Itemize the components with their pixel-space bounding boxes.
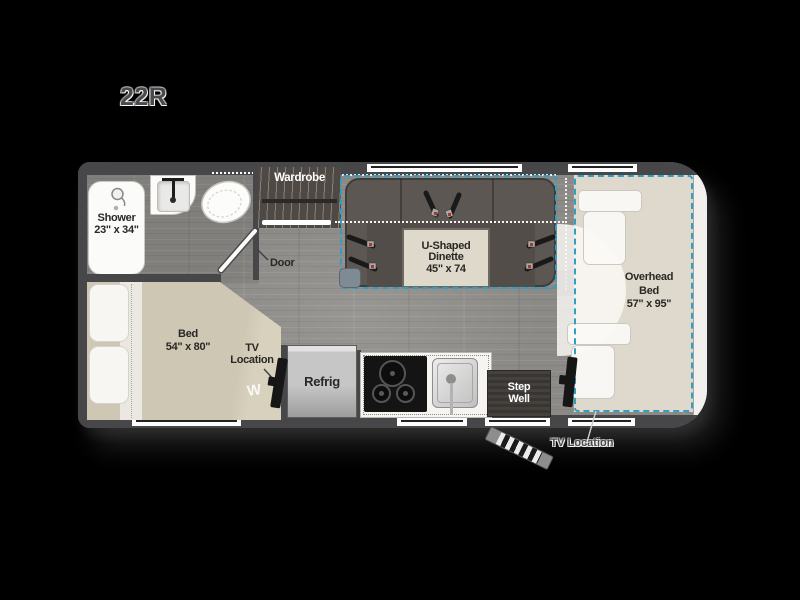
bed-label-block: Bed 54" x 80" bbox=[156, 328, 220, 354]
cab-front-shell bbox=[693, 162, 707, 428]
tv-cab-label: TV Location bbox=[532, 437, 632, 449]
door-label: Door bbox=[270, 258, 310, 270]
refrig-label: Refrig bbox=[304, 376, 340, 388]
shower-label: Shower bbox=[89, 213, 144, 225]
tv-bedroom-label: TV Location bbox=[228, 343, 276, 366]
bed-dims: 54" x 80" bbox=[156, 341, 220, 354]
floorplan-body: Shower 23" x 34" Door Wardrobe U-Shaped … bbox=[78, 162, 707, 428]
floorplan-image: 22R Shower 23" x 34" bbox=[0, 0, 800, 600]
model-title: 22R bbox=[120, 83, 167, 112]
cab-area: Overhead Bed 57" x 95" bbox=[557, 175, 695, 415]
window-bottom-cabdoor bbox=[568, 418, 635, 426]
burner bbox=[372, 384, 391, 403]
burner bbox=[379, 360, 406, 387]
window-bottom-entry bbox=[485, 418, 550, 426]
wardrobe-label: Wardrobe bbox=[258, 173, 341, 185]
burner bbox=[396, 384, 415, 403]
step-well: Step Well bbox=[487, 370, 551, 417]
refrigerator: Refrig bbox=[287, 345, 357, 418]
wardrobe-rod bbox=[262, 199, 337, 203]
wall-left bbox=[78, 162, 87, 428]
bathroom-sink-counter bbox=[150, 175, 196, 215]
overhead-bed-label-block: Overhead Bed 57" x 95" bbox=[595, 271, 695, 312]
shower: Shower 23" x 34" bbox=[88, 181, 145, 275]
shower-dims: 23" x 34" bbox=[89, 225, 144, 237]
kitchen-sink bbox=[432, 358, 478, 408]
pillow bbox=[89, 346, 129, 404]
wardrobe-shelf bbox=[262, 220, 331, 225]
pillow bbox=[89, 284, 129, 342]
window-top-dinette bbox=[367, 164, 522, 172]
bathroom-vent bbox=[212, 172, 254, 174]
cabinet-end bbox=[339, 268, 361, 288]
dinette-slideout-outline bbox=[340, 175, 557, 289]
bed-label: Bed bbox=[156, 328, 220, 341]
window-bottom-kitchen bbox=[397, 418, 467, 426]
window-top-cab bbox=[568, 164, 637, 172]
brand-logo: W bbox=[246, 381, 262, 400]
wardrobe: Wardrobe bbox=[258, 167, 341, 228]
